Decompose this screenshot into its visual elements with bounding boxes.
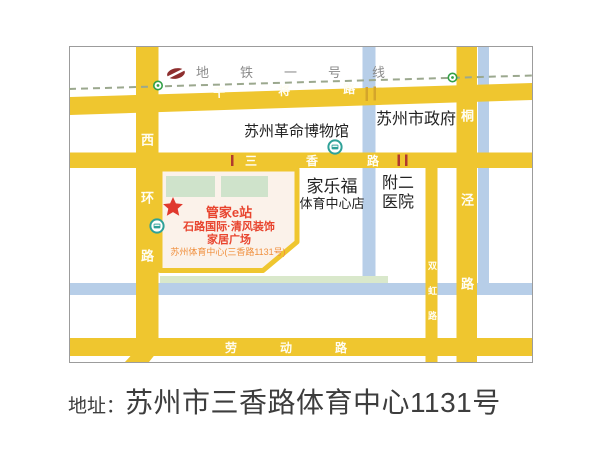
address-prefix: 地址： [68, 396, 125, 417]
venue-name: 管家e站 [206, 206, 252, 219]
poi-carrefour-line1: 家乐福 [307, 178, 358, 195]
venue-line1: 石路国际·清风装饰 [183, 222, 275, 233]
poi-carrefour-line2: 体育中心店 [299, 197, 364, 210]
road-label-xihuan: 西环路 [140, 133, 153, 307]
lawn-block [221, 176, 268, 197]
poi-government: 苏州市政府 [376, 112, 456, 128]
road-label-laodong: 劳动路 [225, 342, 390, 354]
road-label-sanxiang: 三香路 [245, 155, 428, 167]
metro-line-label: 地铁一号线 [196, 66, 416, 79]
poi-hospital-line2: 医院 [382, 195, 414, 211]
bridge-mark-red [231, 155, 234, 166]
metro-station-icon [448, 73, 456, 81]
bus-stop-icon [328, 140, 341, 153]
lawn-block [166, 176, 215, 197]
address-line: 地址：苏州市三香路体育中心1131号 [68, 381, 501, 421]
riverside-green-strip [160, 276, 388, 283]
venue-line2: 家居广场 [207, 235, 251, 246]
poi-hospital-line1: 附二 [382, 176, 414, 192]
address-text: 苏州市三香路体育中心1131号 [125, 387, 501, 418]
map-screenshot: 地铁一号线 干将路 三香路 劳动路 西环路 桐泾路 双虹路 苏州革命博物馆 苏州… [0, 0, 603, 455]
road-label-shuanghong: 双虹路 [427, 261, 436, 336]
road-label-tongjing: 桐泾路 [460, 109, 473, 361]
poi-museum: 苏州革命博物馆 [244, 124, 349, 139]
venue-line3: 苏州体育中心(三香路1131号) [170, 248, 285, 257]
metro-station-icon [154, 81, 162, 89]
